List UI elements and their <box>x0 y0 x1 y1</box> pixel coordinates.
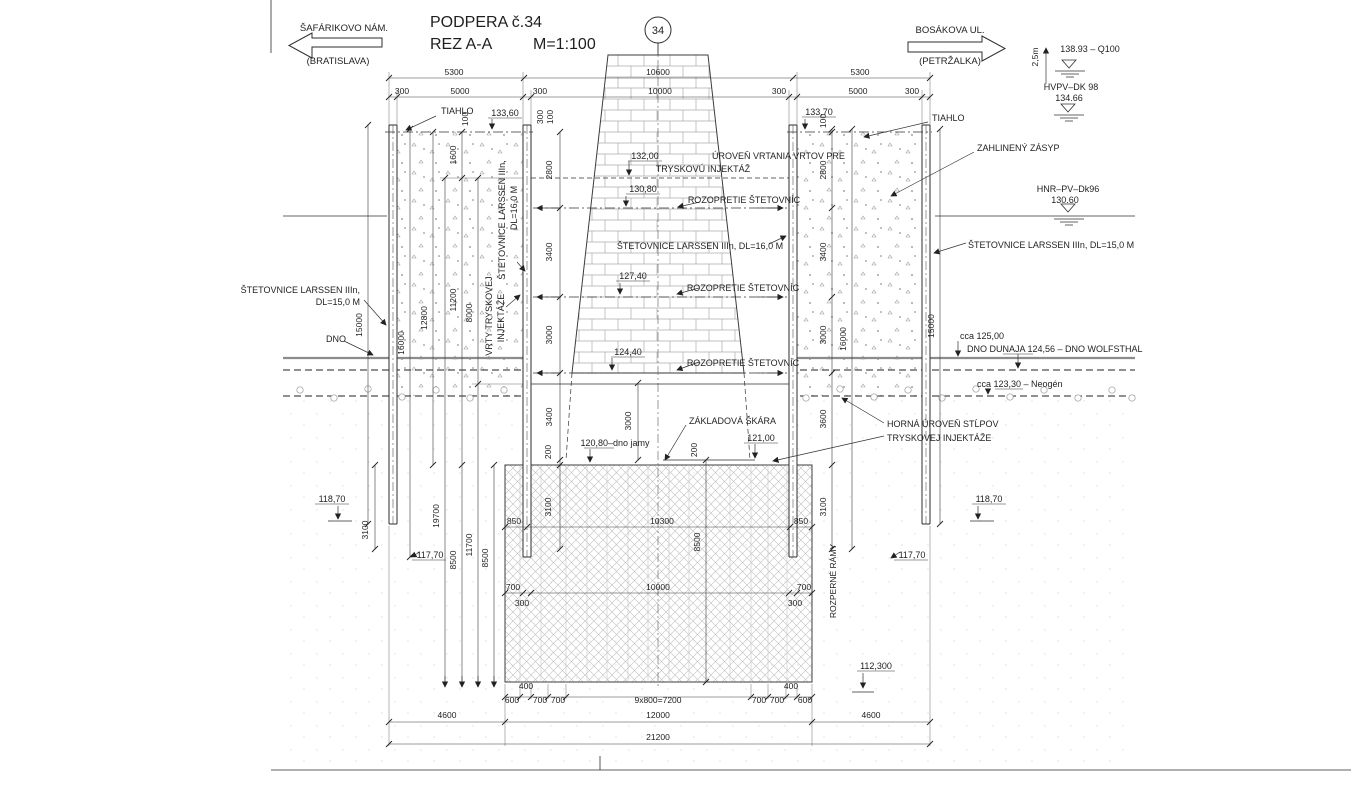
q100-label: 138.93 – Q100 <box>1060 44 1120 54</box>
dim-700-d: 700 <box>551 695 565 705</box>
elev-118-70-left: 118,70 <box>319 494 346 504</box>
dim-11700: 11700 <box>464 533 474 556</box>
dim-12800: 12800 <box>419 306 429 330</box>
dim-5300-left: 5300 <box>445 67 464 77</box>
q100-offset: 2,5m <box>1030 48 1040 67</box>
larssen16-vertical-1: ŠTETOVNICE LARSSEN IIIn, <box>497 160 507 279</box>
dim-3100-right: 3100 <box>818 497 828 516</box>
dim-16000-left: 16000 <box>396 331 406 355</box>
dim-300-stack: 300 <box>535 110 545 124</box>
dim-700-f: 700 <box>770 695 784 705</box>
elev-117-70-right: 117,70 <box>899 550 926 560</box>
pier-number: 34 <box>652 25 664 37</box>
larssen16-vertical-2: DL=16,0 M <box>509 186 519 230</box>
dim-15000-left: 15000 <box>354 313 364 337</box>
dim-3600-right: 3600 <box>818 409 828 428</box>
dim-2800-right: 2800 <box>818 160 828 179</box>
dim-10600: 10600 <box>646 67 670 77</box>
rozperne-label: ROZPERNÉ RÁMY <box>828 544 838 618</box>
dim-100-left: 100 <box>460 112 470 126</box>
elev-118-70-right: 118,70 <box>976 494 1003 504</box>
nav-right-name: BOSÁKOVA UL. <box>916 25 985 36</box>
drill-note-1: ÚROVEŇ VRTANIA VRTOV PRE <box>712 151 845 161</box>
dim-2800-left: 2800 <box>544 160 554 179</box>
dim-16000-right: 16000 <box>838 327 848 351</box>
zasyp-label: ZAHLINENÝ ZÁSYP <box>977 143 1060 153</box>
dim-100-right: 100 <box>818 114 828 128</box>
dim-850-right: 850 <box>794 516 808 526</box>
dim-3100-outer-left: 3100 <box>360 520 370 539</box>
backfill-right <box>797 130 922 396</box>
elev-120-80: 120,80–dno jamy <box>580 438 650 448</box>
elev-112-300: 112,300 <box>860 661 892 671</box>
dim-21200: 21200 <box>646 732 670 742</box>
dno-dunaja-label: DNO DUNAJA 124,56 – DNO WOLFSTHAL <box>967 344 1143 354</box>
dim-700-b: 700 <box>797 582 811 592</box>
dim-700-e: 700 <box>752 695 766 705</box>
larssen15-left-2: DL=15,0 M <box>316 297 360 307</box>
dim-3000-right: 3000 <box>818 325 828 344</box>
dim-1600: 1600 <box>448 145 458 164</box>
elev-130-80: 130,80 <box>629 184 657 194</box>
pile-left-inner <box>523 125 532 557</box>
foundation-block <box>505 460 812 682</box>
hnr-value: 130.60 <box>1051 195 1079 205</box>
dim-700-c: 700 <box>533 695 547 705</box>
brace-note-3: ROZOPRETIE ŠTETOVNÍC <box>687 358 800 368</box>
dim-8500-a: 8500 <box>448 550 458 569</box>
dim-3400-left-b: 3400 <box>544 407 554 426</box>
dim-8000: 8000 <box>464 303 474 322</box>
dim-19700: 19700 <box>431 504 441 528</box>
elev-127-40: 127,40 <box>619 271 647 281</box>
dim-5000-left: 5000 <box>451 86 470 96</box>
nav-left-name: ŠAFÁRIKOVO NÁM. <box>300 23 388 34</box>
dim-3100-left: 3100 <box>543 497 553 516</box>
zakladova-label: ZÁKLADOVÁ ŠKÁRA <box>689 416 776 426</box>
drawing-sheet: PODPERA č.34 REZ A-A M=1:100 34 ŠAFÁRIKO… <box>0 0 1351 789</box>
dim-5300-right: 5300 <box>851 67 870 77</box>
dim-700-a: 700 <box>506 582 520 592</box>
dim-300-1: 300 <box>395 86 409 96</box>
dim-4600-l: 4600 <box>438 710 457 720</box>
q100-symbol <box>1055 60 1085 77</box>
nav-left-sub: (BRATISLAVA) <box>307 56 370 67</box>
brace-note-2: ROZOPRETIE ŠTETOVNÍC <box>687 283 800 293</box>
dim-200-left: 200 <box>543 445 553 459</box>
jet-note-1: VRTY TRYSKOVEJ <box>484 276 494 355</box>
larssen15-left-1: ŠTETOVNICE LARSSEN IIIn, <box>241 285 360 295</box>
dim-10000-bottom: 10000 <box>646 582 670 592</box>
dim-8500-b: 8500 <box>480 548 490 567</box>
dim-600-r: 600 <box>798 695 812 705</box>
dim-300-2: 300 <box>533 86 547 96</box>
dim-200-center: 200 <box>689 443 699 457</box>
dim-300-3: 300 <box>772 86 786 96</box>
riverbed-cca: cca 125,00 <box>960 331 1004 341</box>
horna-label-2: TRYSKOVEJ INJEKTÁŽE <box>887 433 991 443</box>
scale-label: M=1:100 <box>533 36 596 53</box>
elev-132-00: 132,00 <box>631 151 659 161</box>
hvpv-name: HVPV–DK 98 <box>1044 82 1099 92</box>
dim-100-stack: 100 <box>545 110 555 124</box>
drill-note-2: TRYSKOVÚ INJEKTÁŽ <box>656 164 751 174</box>
dim-9x800: 9x800=7200 <box>634 695 681 705</box>
elev-133-60: 133,60 <box>491 108 519 118</box>
larssen16-center: ŠTETOVNICE LARSSEN IIIn, DL=16,0 M <box>617 241 783 251</box>
dim-12000: 12000 <box>646 710 670 720</box>
dim-10300: 10300 <box>650 516 674 526</box>
elev-121-00: 121,00 <box>747 433 775 443</box>
larssen15-right: ŠTETOVNICE LARSSEN IIIn, DL=15,0 M <box>968 240 1134 250</box>
dim-850-left: 850 <box>507 516 521 526</box>
dim-10000-top: 10000 <box>648 86 672 96</box>
dim-300-4: 300 <box>905 86 919 96</box>
dim-400-l: 400 <box>519 681 533 691</box>
left-direction-arrow-icon <box>289 33 382 58</box>
pile-right-inner <box>789 125 798 557</box>
section-label: REZ A-A <box>430 36 493 53</box>
brace-note-1: ROZOPRETIE ŠTETOVNÍC <box>688 195 801 205</box>
horna-label-1: HORNÁ ÚROVEŇ STĹPOV <box>887 419 999 429</box>
hnr-symbol <box>935 204 1135 225</box>
hnr-name: HNR–PV–Dk96 <box>1037 184 1100 194</box>
elev-124-40: 124,40 <box>614 347 642 357</box>
pile-left-outer <box>389 125 398 524</box>
dim-3400-right: 3400 <box>818 242 828 261</box>
dim-4600-r: 4600 <box>862 710 881 720</box>
dim-3400-left-a: 3400 <box>544 242 554 261</box>
page-title: PODPERA č.34 <box>430 14 542 31</box>
dim-5000-right: 5000 <box>849 86 868 96</box>
dim-400-r: 400 <box>784 681 798 691</box>
hvpv-value: 134.66 <box>1055 93 1083 103</box>
tiahlo-right: TIAHLO <box>932 113 965 123</box>
neogen-label: cca 123,30 – Neogén <box>977 379 1063 389</box>
hvpv-symbol <box>1054 104 1084 121</box>
dim-3000-center: 3000 <box>623 411 633 430</box>
dno-label: DNO <box>326 334 346 344</box>
dim-300-found-r: 300 <box>788 598 802 608</box>
elev-117-70-left: 117,70 <box>417 550 444 560</box>
nav-right-sub: (PETRŽALKA) <box>919 56 981 67</box>
dim-3000-left: 3000 <box>544 325 554 344</box>
jet-note-2: INJEKTÁŽE <box>496 294 506 343</box>
dim-600-l: 600 <box>505 695 519 705</box>
dim-11200: 11200 <box>448 288 458 311</box>
dim-15000-right: 15000 <box>926 314 936 338</box>
dim-300-found-l: 300 <box>515 598 529 608</box>
section-drawing: PODPERA č.34 REZ A-A M=1:100 34 ŠAFÁRIKO… <box>0 0 1351 789</box>
dim-8500-found: 8500 <box>692 532 702 551</box>
